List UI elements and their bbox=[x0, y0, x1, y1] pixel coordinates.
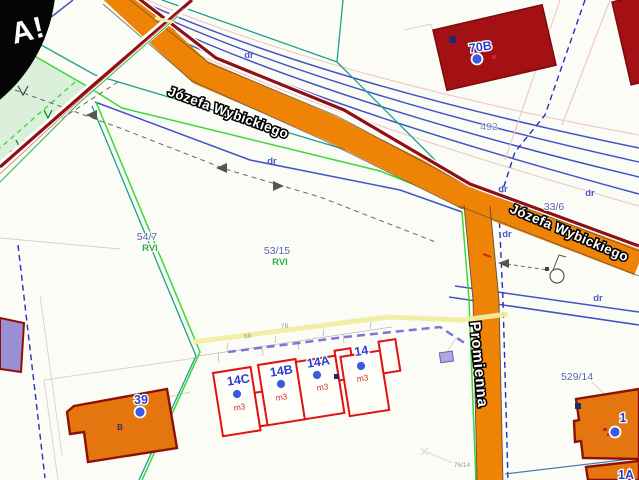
map-viewport: Józefa Wybickiego Józefa Wybickiego Prom… bbox=[0, 0, 639, 480]
map-canvas[interactable]: Józefa Wybickiego Józefa Wybickiego Prom… bbox=[0, 0, 639, 480]
building-point bbox=[135, 407, 146, 418]
building-point bbox=[472, 54, 483, 65]
building-label: 1 bbox=[620, 411, 627, 425]
usage-label: m3 bbox=[275, 391, 288, 403]
road-class-label: dr bbox=[267, 156, 277, 167]
parcel-label-33-6: 33/6 bbox=[544, 201, 565, 213]
building-label: 39 bbox=[134, 393, 148, 407]
usage-label: m3 bbox=[356, 372, 369, 384]
building-label: 14 bbox=[353, 343, 369, 359]
parcel-label-492: 492 bbox=[480, 121, 498, 133]
building-lavender[interactable] bbox=[0, 318, 24, 372]
building-point bbox=[610, 427, 621, 438]
usage-label: m3 bbox=[233, 401, 246, 413]
parcel-label-54-7: 54/7 bbox=[137, 231, 158, 243]
road-class-label: dr bbox=[502, 229, 512, 240]
parcel-label-529-14: 529/14 bbox=[561, 371, 593, 383]
building-label: 1A bbox=[618, 468, 634, 480]
building-point bbox=[276, 379, 286, 389]
measurement-label: 68 bbox=[244, 332, 253, 340]
road-class-label: dr bbox=[585, 188, 595, 199]
land-class-label: RVI bbox=[142, 243, 158, 254]
building-1[interactable]: 1 bbox=[574, 389, 639, 459]
usage-label: m3 bbox=[316, 381, 329, 393]
building-letter: B bbox=[117, 423, 123, 432]
road-class-label: dr bbox=[498, 184, 508, 195]
parcel-label-76-14: 76/14 bbox=[454, 462, 471, 469]
measurement-label: 78 bbox=[281, 322, 290, 330]
building-point bbox=[232, 389, 242, 399]
building-point bbox=[312, 370, 322, 380]
road-class-label: dr bbox=[593, 293, 603, 304]
building-point bbox=[356, 361, 366, 371]
road-class-label: dr bbox=[244, 50, 254, 61]
land-class-label: RVI bbox=[272, 257, 288, 268]
small-structure bbox=[439, 351, 453, 363]
parcel-label-53-15: 53/15 bbox=[264, 245, 290, 257]
